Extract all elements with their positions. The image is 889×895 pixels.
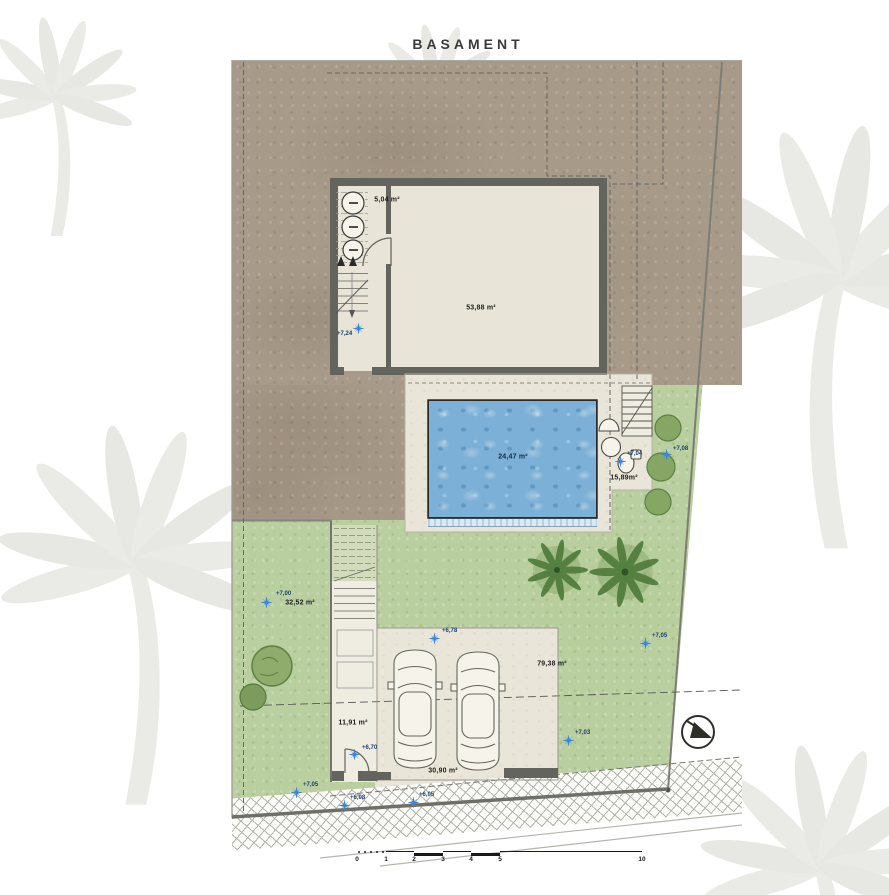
elevation-marker-label: +6,78 bbox=[442, 628, 457, 634]
scale-tick: 1 bbox=[384, 856, 388, 863]
north-arrow-icon bbox=[682, 716, 714, 748]
area-label-pool-bath: 15,89m² bbox=[610, 475, 637, 482]
scale-tick: 5 bbox=[498, 856, 502, 863]
tree-icon bbox=[252, 646, 292, 686]
palm-tree-icon bbox=[527, 539, 588, 601]
cars bbox=[388, 650, 505, 770]
area-label-main-hall: 53,88 m² bbox=[466, 305, 496, 312]
bush-icon bbox=[645, 489, 671, 515]
area-label-entry-hall: 11,91 m² bbox=[338, 720, 367, 727]
elevation-marker-label: +6,08 bbox=[350, 795, 365, 801]
pool-stairs bbox=[622, 386, 652, 436]
floor-plan-page: BASAMENT 5,04 m² 53,88 m² 24,47 m² 15,89… bbox=[0, 0, 889, 895]
elevation-marker-label: +7,24 bbox=[337, 331, 352, 337]
elevation-marker-icon bbox=[429, 631, 440, 642]
plan-linework bbox=[0, 0, 889, 895]
elevation-marker-icon bbox=[339, 798, 350, 809]
scale-tick: 10 bbox=[638, 856, 645, 863]
scale-tick: 4 bbox=[469, 856, 473, 863]
scale-bar: 0 1 2 3 4 5 10 bbox=[350, 848, 650, 868]
scale-tick: 3 bbox=[441, 856, 445, 863]
area-label-pool: 24,47 m² bbox=[498, 454, 528, 461]
elevation-marker-icon bbox=[661, 447, 672, 458]
building-walls bbox=[330, 178, 607, 375]
bush-icon bbox=[240, 684, 266, 710]
scale-tick: 0 bbox=[355, 856, 359, 863]
elevation-marker-icon bbox=[291, 785, 302, 796]
elevation-marker-label: +7,05 bbox=[652, 633, 667, 639]
area-label-technical-room: 5,04 m² bbox=[374, 197, 400, 204]
bush-icon bbox=[655, 415, 681, 441]
scale-tick: 2 bbox=[412, 856, 416, 863]
elevation-marker-label: +7,00 bbox=[276, 591, 291, 597]
elevation-marker-label: +6,05 bbox=[419, 792, 434, 798]
elevation-marker-icon bbox=[261, 595, 272, 606]
area-label-lawn-right: 79,38 m² bbox=[537, 661, 567, 668]
elevation-marker-label: +7,03 bbox=[575, 730, 590, 736]
car bbox=[451, 652, 505, 770]
elevation-marker-icon bbox=[615, 454, 626, 465]
area-label-lawn-left: 32,52 m² bbox=[285, 600, 315, 607]
shower-icon bbox=[599, 419, 619, 431]
elevation-marker-icon bbox=[349, 747, 360, 758]
palm-tree-icon bbox=[589, 536, 660, 608]
elevation-marker-icon bbox=[408, 795, 419, 806]
elevation-marker-icon bbox=[563, 733, 574, 744]
elevation-marker-icon bbox=[353, 321, 364, 332]
page-title: BASAMENT bbox=[412, 36, 523, 52]
exterior-stair bbox=[332, 525, 377, 782]
elevation-marker-icon bbox=[640, 636, 651, 647]
elevation-marker-label: +6,70 bbox=[362, 745, 377, 751]
technical-room-fixtures bbox=[336, 188, 368, 318]
elevation-marker-label: +7,04 bbox=[627, 451, 642, 457]
car bbox=[388, 650, 442, 768]
area-label-carport: 30,90 m² bbox=[428, 768, 458, 775]
carport-structure bbox=[332, 628, 558, 781]
elevation-marker-label: +7,05 bbox=[303, 782, 318, 788]
elevation-marker-label: +7,08 bbox=[673, 446, 688, 452]
